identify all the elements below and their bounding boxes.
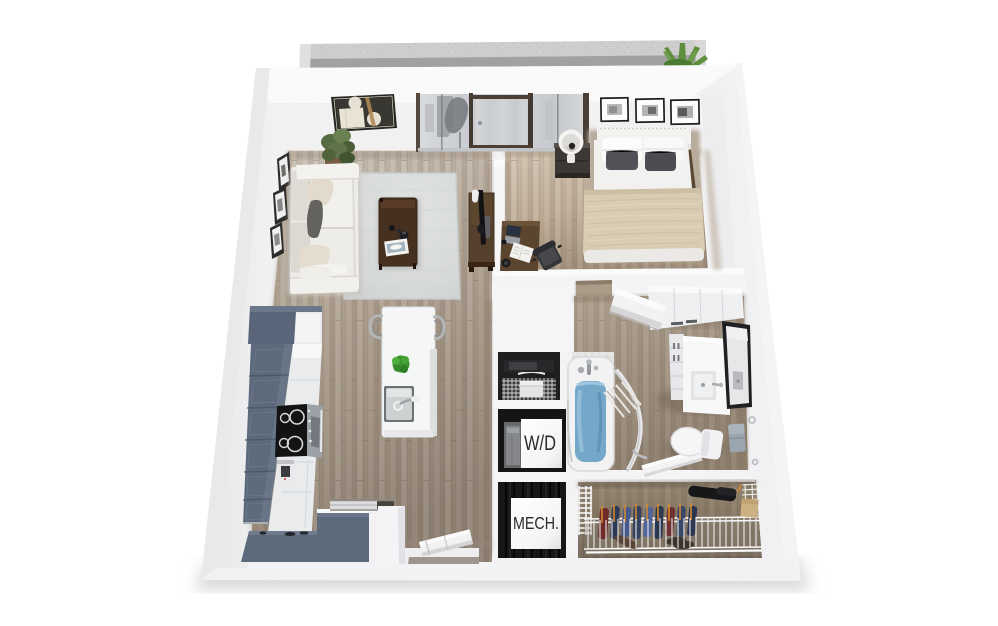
svg-text:MECH.: MECH.: [513, 513, 559, 533]
svg-text:W/D: W/D: [524, 432, 556, 455]
